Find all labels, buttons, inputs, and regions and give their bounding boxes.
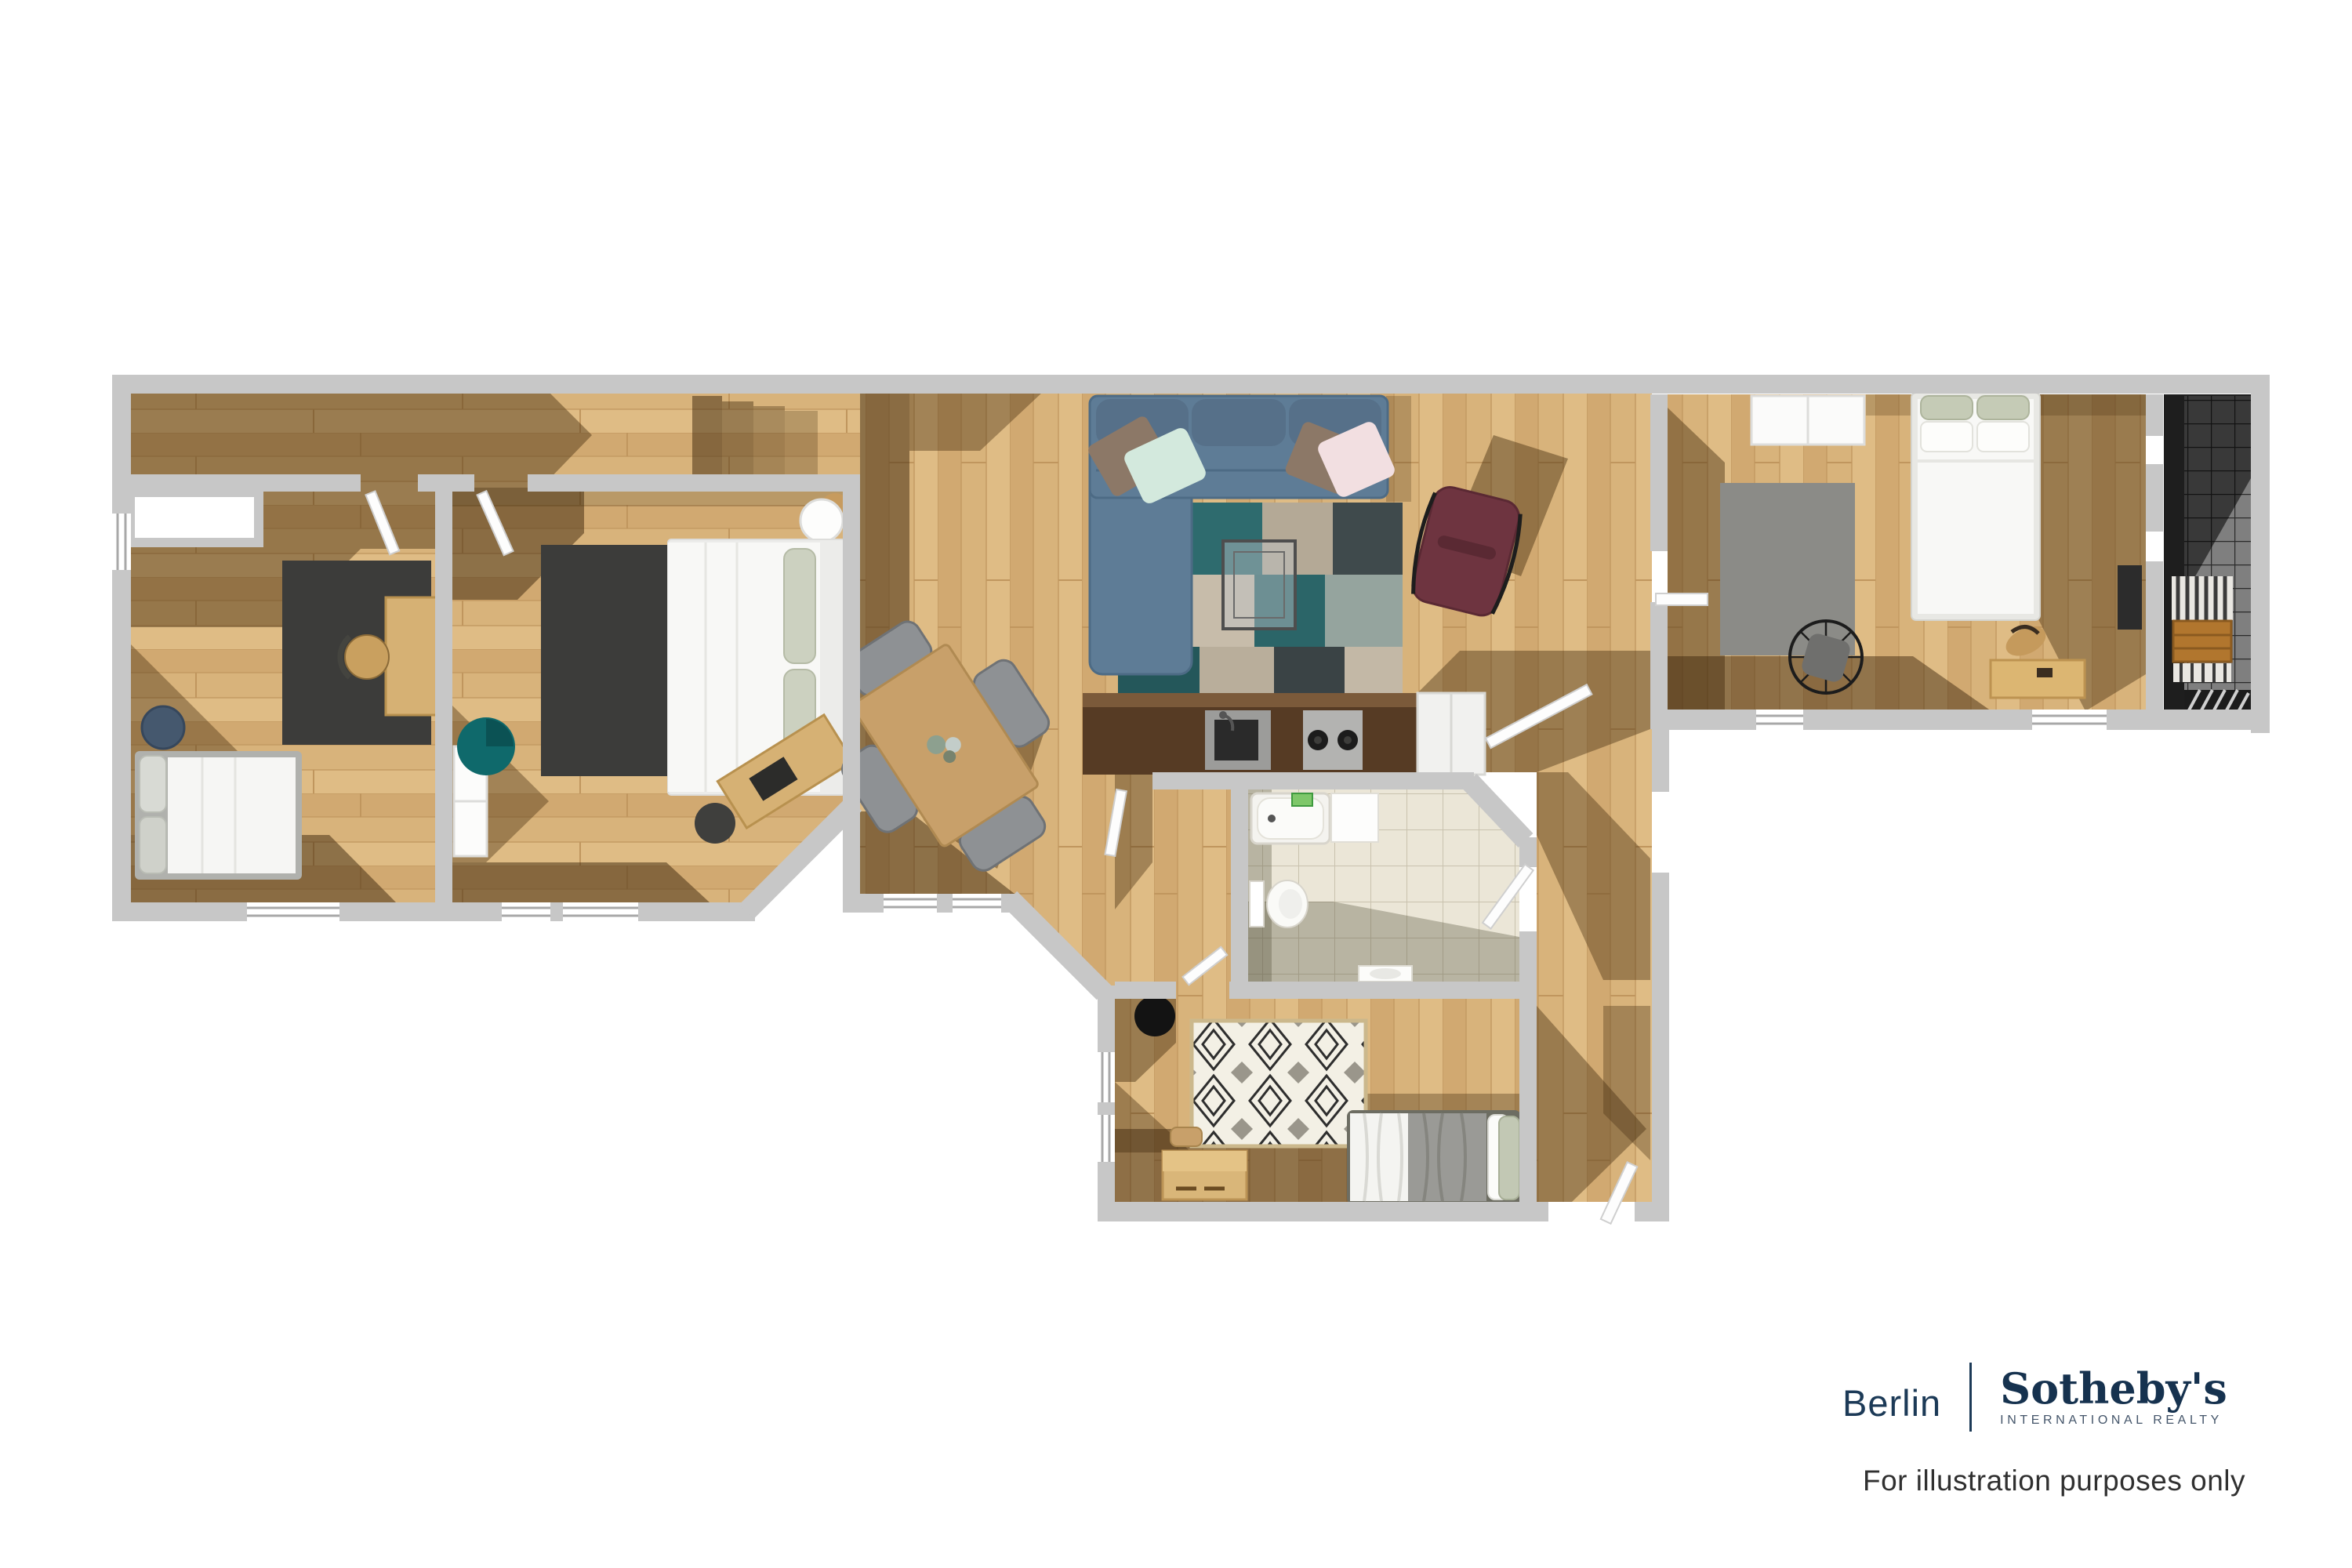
wall-office-right	[435, 492, 452, 902]
bedroom2-desk-chair	[695, 803, 735, 844]
kitchen	[1083, 693, 1485, 775]
wall-wing-bottom-1	[1098, 1202, 1548, 1221]
bathtub-drain	[1268, 815, 1276, 822]
wall-wing-left-1	[1098, 985, 1115, 1052]
wall-balcony-2	[2146, 464, 2163, 532]
master-bed	[1911, 393, 2040, 620]
wall-bedroom2-right	[843, 474, 860, 913]
wall-bath-left	[1231, 789, 1248, 982]
dresser	[1163, 1151, 1247, 1200]
office-chair	[345, 635, 389, 679]
slatted-shelf	[2172, 576, 2233, 620]
desk-item	[2037, 668, 2053, 677]
wall-wing-top-1	[1115, 982, 1176, 999]
bathtub-inner	[1258, 798, 1323, 839]
striped-doormat	[2184, 690, 2249, 710]
wire-fan-chair	[1790, 621, 1862, 693]
brand-row: Berlin Sotheby's INTERNATIONAL REALTY	[1842, 1363, 2250, 1432]
soap-tray	[1292, 793, 1312, 806]
office-desk	[386, 597, 442, 715]
entry-door-opening	[1652, 792, 1669, 873]
wooden-crates	[2173, 621, 2231, 662]
diamond-rug	[1192, 1021, 1366, 1146]
footer-branding: Berlin Sotheby's INTERNATIONAL REALTY Fo…	[1842, 1363, 2250, 1497]
wall-outer-top	[112, 375, 2270, 394]
wall-master-left-1	[1650, 394, 1668, 551]
wall-outer-bottom-left	[112, 902, 755, 921]
niche	[135, 497, 254, 538]
round-side-table	[800, 499, 843, 542]
wall-bath-right-1	[1519, 837, 1537, 867]
wall-corridor-right-1	[1652, 729, 1669, 792]
master-desk	[1991, 660, 2085, 698]
toilet	[1250, 880, 1308, 927]
washbasin-bowl	[1370, 968, 1401, 979]
wall-master-bottom-2	[1803, 710, 2032, 730]
slatted-shelf-2	[2173, 663, 2231, 682]
navy-pouf	[142, 706, 184, 749]
brand-divider	[1969, 1363, 1972, 1432]
brand-name: Sotheby's	[2000, 1367, 2227, 1411]
floor-plan	[0, 0, 2352, 1568]
wall-wing-left-2	[1098, 1102, 1115, 1115]
wall-hallway-3	[528, 474, 843, 492]
master-bedroom-door	[1656, 593, 1708, 605]
wall-master-bottom-3	[2107, 710, 2270, 730]
door-gap-floor	[1176, 982, 1229, 1000]
wall-corridor-right-2	[1652, 873, 1669, 1221]
office-single-bed	[135, 751, 302, 880]
wall-master-bottom-1	[1668, 710, 1756, 730]
wing-bottom-door-opening	[1548, 1202, 1635, 1221]
brand-block: Sotheby's INTERNATIONAL REALTY	[2000, 1367, 2227, 1428]
wall-balcony-1	[2146, 394, 2163, 436]
shower-panel	[1331, 793, 1378, 842]
wall-master-left-2	[1650, 602, 1668, 729]
wall-balcony-3	[2146, 561, 2163, 710]
wall-bedroom3-right	[1519, 999, 1537, 1202]
kitchen-counter-edge	[1083, 693, 1417, 707]
disclaimer-text: For illustration purposes only	[1863, 1465, 2250, 1497]
wall-hallway-2	[418, 474, 474, 492]
brand-subtitle: INTERNATIONAL REALTY	[2000, 1414, 2223, 1428]
sofa-chaise	[1090, 470, 1192, 674]
black-stool	[1134, 996, 1175, 1036]
master-rug	[1720, 483, 1855, 655]
dark-sideboard	[2118, 565, 2142, 630]
window-left-wall	[112, 514, 131, 570]
wall-wing-top-2	[1229, 982, 1525, 999]
brand-office-name: Berlin	[1842, 1370, 1941, 1425]
wall-kitchen	[1152, 772, 1474, 789]
toilet-tank	[1250, 881, 1264, 927]
wall-outer-left	[112, 375, 131, 921]
kitchen-sink-basin	[1214, 720, 1258, 760]
bedroom3-bed	[1347, 1110, 1521, 1204]
wall-outer-right	[2251, 375, 2270, 733]
